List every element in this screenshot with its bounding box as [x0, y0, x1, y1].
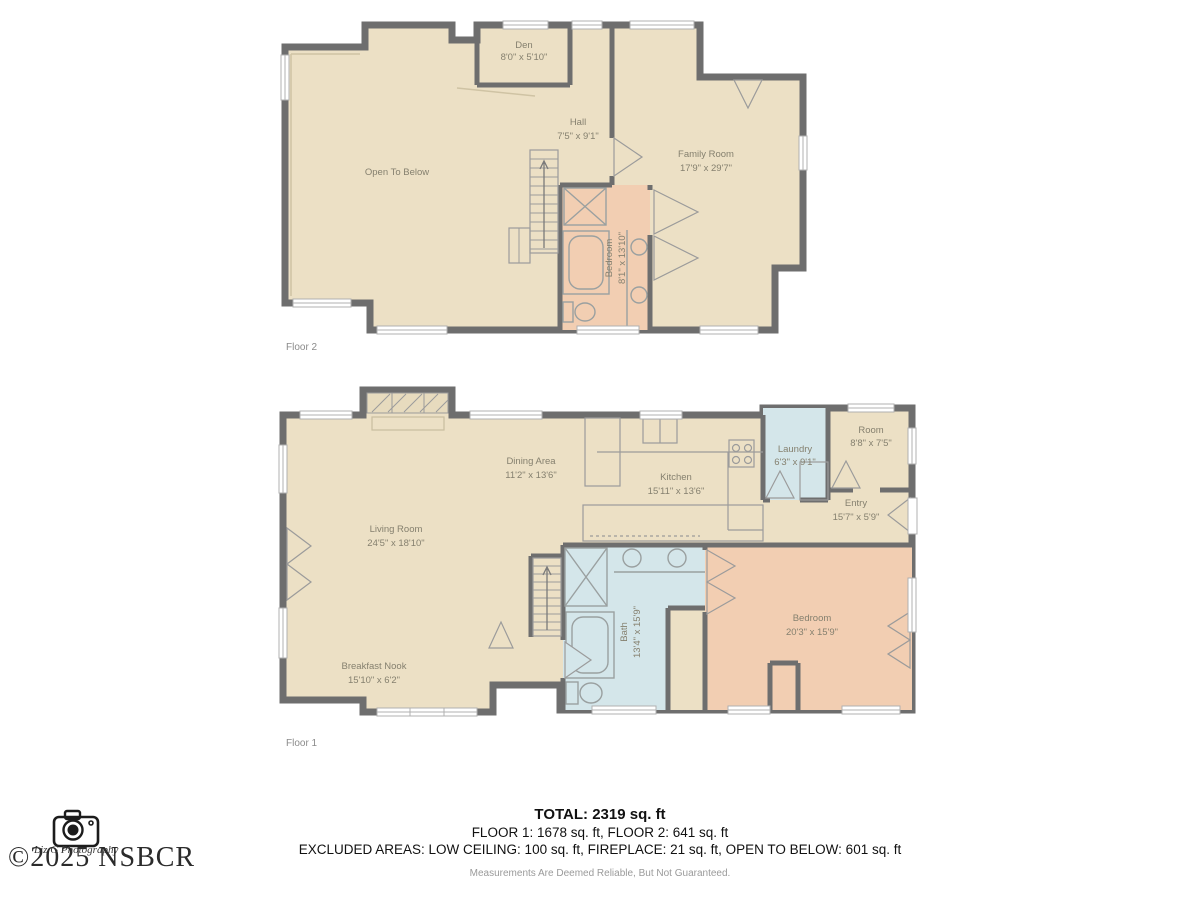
room-label-dining-area: Dining Area [506, 456, 556, 467]
room-label-kitchen: Kitchen [660, 472, 692, 483]
room-dims-kitchen: 15'11" x 13'6" [648, 486, 705, 497]
room-dims-family-room: 17'9" x 29'7" [680, 163, 732, 174]
floor1-stairs [533, 558, 561, 636]
floor-plan-page: Open To Below Den 8'0" x 5'10" Hall 7'5"… [0, 0, 1200, 900]
room-dims-hall: 7'5" x 9'1" [557, 131, 599, 142]
room-label-room: Room [858, 425, 883, 436]
room-label-den: Den [515, 40, 532, 51]
room-dims-entry: 15'7" x 5'9" [833, 512, 880, 523]
floor2-caption: Floor 2 [286, 342, 318, 353]
room-dims-room: 8'8" x 7'5" [850, 438, 892, 449]
room-label-living-room: Living Room [370, 524, 423, 535]
room-dims-laundry: 6'3" x 9'1" [774, 457, 816, 468]
floor2-plan: Open To Below Den 8'0" x 5'10" Hall 7'5"… [281, 21, 807, 353]
room-label-bedroom2: Bedroom [604, 239, 615, 278]
room-label-bedroom1: Bedroom [793, 613, 832, 624]
room-dims-den: 8'0" x 5'10" [501, 52, 548, 63]
room-label-family-room: Family Room [678, 149, 734, 160]
room-label-entry: Entry [845, 498, 867, 509]
room-label-breakfast-nook: Breakfast Nook [342, 661, 407, 672]
watermark: Liz G Photography ©2025 NSBCR [6, 806, 216, 886]
room-label-open-to-below: Open To Below [365, 167, 429, 178]
floor1-plan: Living Room 24'5" x 18'10" Dining Area 1… [279, 390, 917, 749]
room-dims-living-room: 24'5" x 18'10" [367, 538, 424, 549]
room-label-laundry: Laundry [778, 444, 813, 455]
room-dims-breakfast-nook: 15'10" x 6'2" [348, 675, 400, 686]
floor1-caption: Floor 1 [286, 738, 318, 749]
room-label-hall: Hall [570, 117, 586, 128]
room-dims-bedroom2: 8'1" x 13'10" [617, 232, 628, 284]
room-dims-bath: 13'4" x 15'9" [632, 606, 643, 658]
floor1-closet-area [668, 608, 705, 710]
floor-plan-canvas: Open To Below Den 8'0" x 5'10" Hall 7'5"… [0, 0, 1200, 900]
copyright-text: ©2025 NSBCR [8, 842, 195, 874]
room-dims-bedroom1: 20'3" x 15'9" [786, 627, 838, 638]
room-dims-dining-area: 11'2" x 13'6" [505, 470, 556, 481]
room-label-bath: Bath [619, 622, 630, 642]
